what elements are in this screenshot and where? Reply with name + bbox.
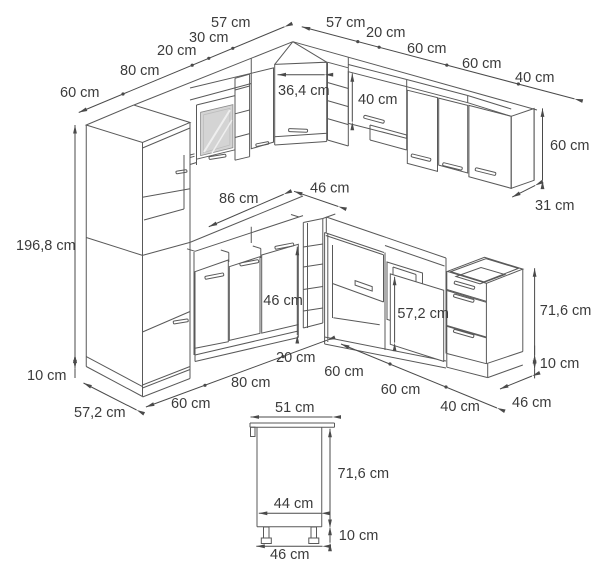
svg-text:46 cm: 46 cm: [263, 293, 303, 309]
svg-text:60 cm: 60 cm: [60, 85, 100, 101]
svg-text:10 cm: 10 cm: [339, 528, 379, 544]
svg-text:10 cm: 10 cm: [27, 368, 67, 384]
svg-text:40 cm: 40 cm: [358, 92, 398, 108]
svg-text:86 cm: 86 cm: [219, 191, 259, 207]
svg-text:60 cm: 60 cm: [407, 41, 447, 57]
svg-text:60 cm: 60 cm: [550, 138, 590, 154]
svg-text:44 cm: 44 cm: [274, 496, 314, 512]
svg-text:57 cm: 57 cm: [211, 15, 251, 31]
svg-text:46 cm: 46 cm: [512, 395, 552, 411]
svg-text:46 cm: 46 cm: [310, 181, 350, 197]
svg-text:31 cm: 31 cm: [535, 198, 575, 214]
svg-text:71,6 cm: 71,6 cm: [338, 466, 390, 482]
svg-text:71,6 cm: 71,6 cm: [540, 303, 592, 319]
svg-text:40 cm: 40 cm: [515, 70, 555, 86]
svg-text:196,8 cm: 196,8 cm: [16, 238, 76, 254]
svg-text:46 cm: 46 cm: [270, 547, 310, 563]
svg-text:80 cm: 80 cm: [231, 375, 271, 391]
svg-text:20 cm: 20 cm: [276, 350, 316, 366]
svg-text:40 cm: 40 cm: [440, 399, 480, 415]
svg-text:10 cm: 10 cm: [540, 356, 580, 372]
svg-text:57,2 cm: 57,2 cm: [397, 306, 449, 322]
svg-text:20 cm: 20 cm: [157, 43, 197, 59]
svg-text:57,2 cm: 57,2 cm: [74, 405, 126, 421]
svg-text:60 cm: 60 cm: [324, 364, 364, 380]
svg-text:36,4 cm: 36,4 cm: [278, 83, 330, 99]
svg-text:60 cm: 60 cm: [462, 56, 502, 72]
svg-text:20 cm: 20 cm: [366, 25, 406, 41]
svg-text:51 cm: 51 cm: [275, 400, 315, 416]
svg-text:60 cm: 60 cm: [381, 382, 421, 398]
svg-text:57 cm: 57 cm: [326, 15, 366, 31]
svg-text:60 cm: 60 cm: [171, 396, 211, 412]
svg-text:80 cm: 80 cm: [120, 63, 160, 79]
